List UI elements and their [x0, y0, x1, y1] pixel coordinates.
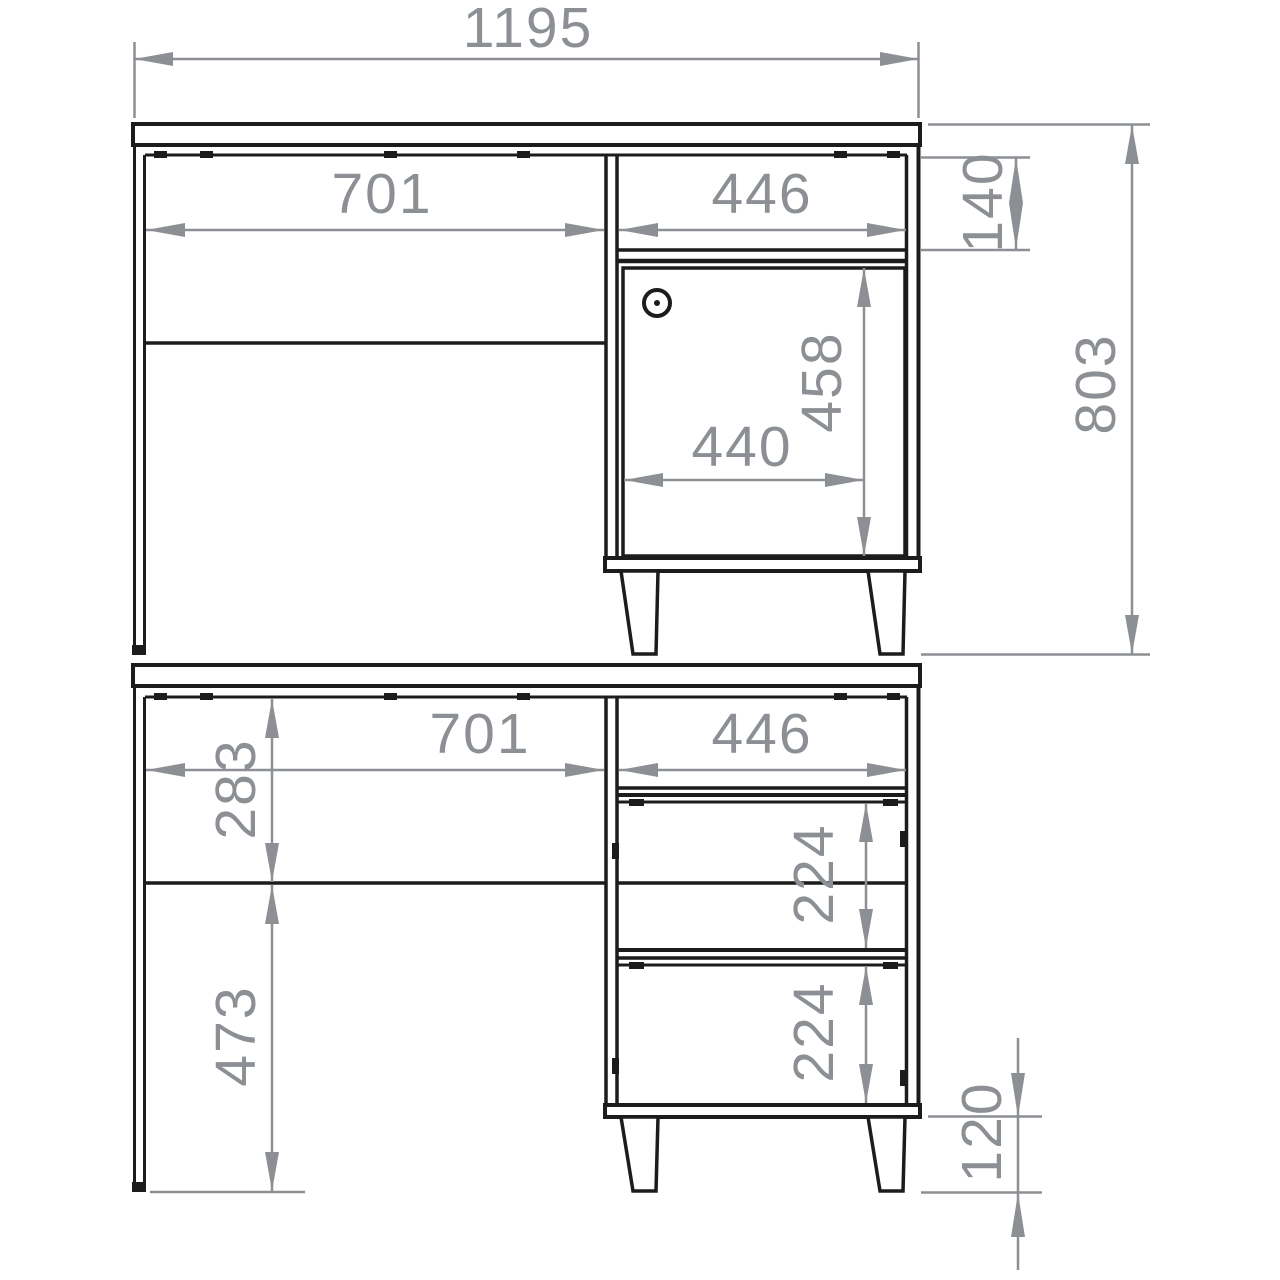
- arrowhead-icon: [857, 517, 871, 556]
- drawer-runner-mark: [612, 843, 619, 859]
- dim-left-opening-width: 701: [331, 162, 432, 226]
- desktop: [133, 665, 920, 686]
- cam-fitting: [887, 151, 900, 158]
- cam-fitting: [517, 151, 530, 158]
- cabinet-right-leg: [868, 571, 905, 654]
- dim-drawer1-height: 224: [782, 823, 846, 924]
- arrowhead-icon: [265, 1152, 279, 1191]
- dim-drawer-front-height: 140: [951, 151, 1015, 252]
- arrowhead-icon: [825, 473, 864, 487]
- arrowhead-icon: [857, 268, 871, 307]
- dim-door-width: 440: [691, 415, 792, 479]
- arrowhead-icon: [867, 223, 906, 237]
- cam-fitting: [517, 693, 530, 700]
- arrowhead-icon: [265, 843, 279, 882]
- keyhole-pin: [654, 300, 660, 306]
- dim-upper-opening-height: 283: [204, 738, 268, 839]
- dim-cabinet-width: 446: [711, 702, 812, 766]
- cam-fitting: [384, 151, 397, 158]
- cabinet-right-leg: [868, 1117, 905, 1191]
- dim-leg-height: 120: [950, 1081, 1014, 1182]
- desktop: [133, 124, 920, 145]
- arrowhead-icon: [265, 885, 279, 924]
- desk-technical-drawing: 1195 701 446 140 458: [0, 0, 1280, 1280]
- dim-drawer2-height: 224: [782, 981, 846, 1082]
- drawer-runner-mark: [900, 831, 907, 847]
- arrowhead-icon: [565, 223, 604, 237]
- cabinet-bottom-slab: [605, 1105, 920, 1117]
- left-panel-foot: [132, 645, 146, 655]
- cam-fitting: [384, 693, 397, 700]
- cam-fitting: [200, 693, 213, 700]
- arrowhead-icon: [146, 763, 185, 777]
- drawer-runner-mark: [612, 1058, 619, 1074]
- arrowhead-icon: [624, 473, 663, 487]
- dim-cabinet-width: 446: [711, 162, 812, 226]
- drawer-runner-mark: [900, 1070, 907, 1086]
- cabinet-left-leg: [621, 1117, 658, 1191]
- front-view: 1195 701 446 140 458: [132, 0, 1150, 655]
- cam-fitting: [834, 693, 847, 700]
- drawer2-pull-notch: [629, 962, 644, 969]
- dim-door-height: 458: [790, 331, 854, 432]
- cam-fitting: [834, 151, 847, 158]
- dim-overall-width: 1195: [463, 0, 594, 60]
- arrowhead-icon: [565, 763, 604, 777]
- arrowhead-icon: [146, 223, 185, 237]
- arrowhead-icon: [867, 763, 906, 777]
- drawer1-pull-notch: [883, 799, 898, 806]
- arrowhead-icon: [619, 763, 658, 777]
- dim-lower-opening-height: 473: [204, 985, 268, 1086]
- cabinet-left-leg: [621, 571, 658, 654]
- arrowhead-icon: [859, 803, 873, 842]
- dim-overall-height: 803: [1064, 333, 1128, 434]
- arrowhead-icon: [1011, 1193, 1025, 1237]
- arrowhead-icon: [859, 966, 873, 1005]
- cam-fitting: [200, 151, 213, 158]
- arrowhead-icon: [859, 1064, 873, 1103]
- drawer1-pull-notch: [629, 799, 644, 806]
- cam-fitting: [887, 693, 900, 700]
- cabinet-bottom-slab: [605, 558, 920, 571]
- arrowhead-icon: [619, 223, 658, 237]
- cam-fitting: [154, 151, 167, 158]
- left-panel-foot: [132, 1182, 146, 1192]
- drawer2-pull-notch: [883, 962, 898, 969]
- drawer-view: 701 446 283 473 224: [132, 665, 1042, 1270]
- dim-left-opening-width: 701: [429, 702, 530, 766]
- arrowhead-icon: [1125, 615, 1139, 654]
- arrowhead-icon: [1125, 125, 1139, 164]
- arrowhead-icon: [880, 52, 919, 66]
- technical-drawing-page: 1195 701 446 140 458: [0, 0, 1280, 1280]
- cam-fitting: [154, 693, 167, 700]
- arrowhead-icon: [265, 699, 279, 738]
- arrowhead-icon: [859, 909, 873, 948]
- arrowhead-icon: [134, 52, 173, 66]
